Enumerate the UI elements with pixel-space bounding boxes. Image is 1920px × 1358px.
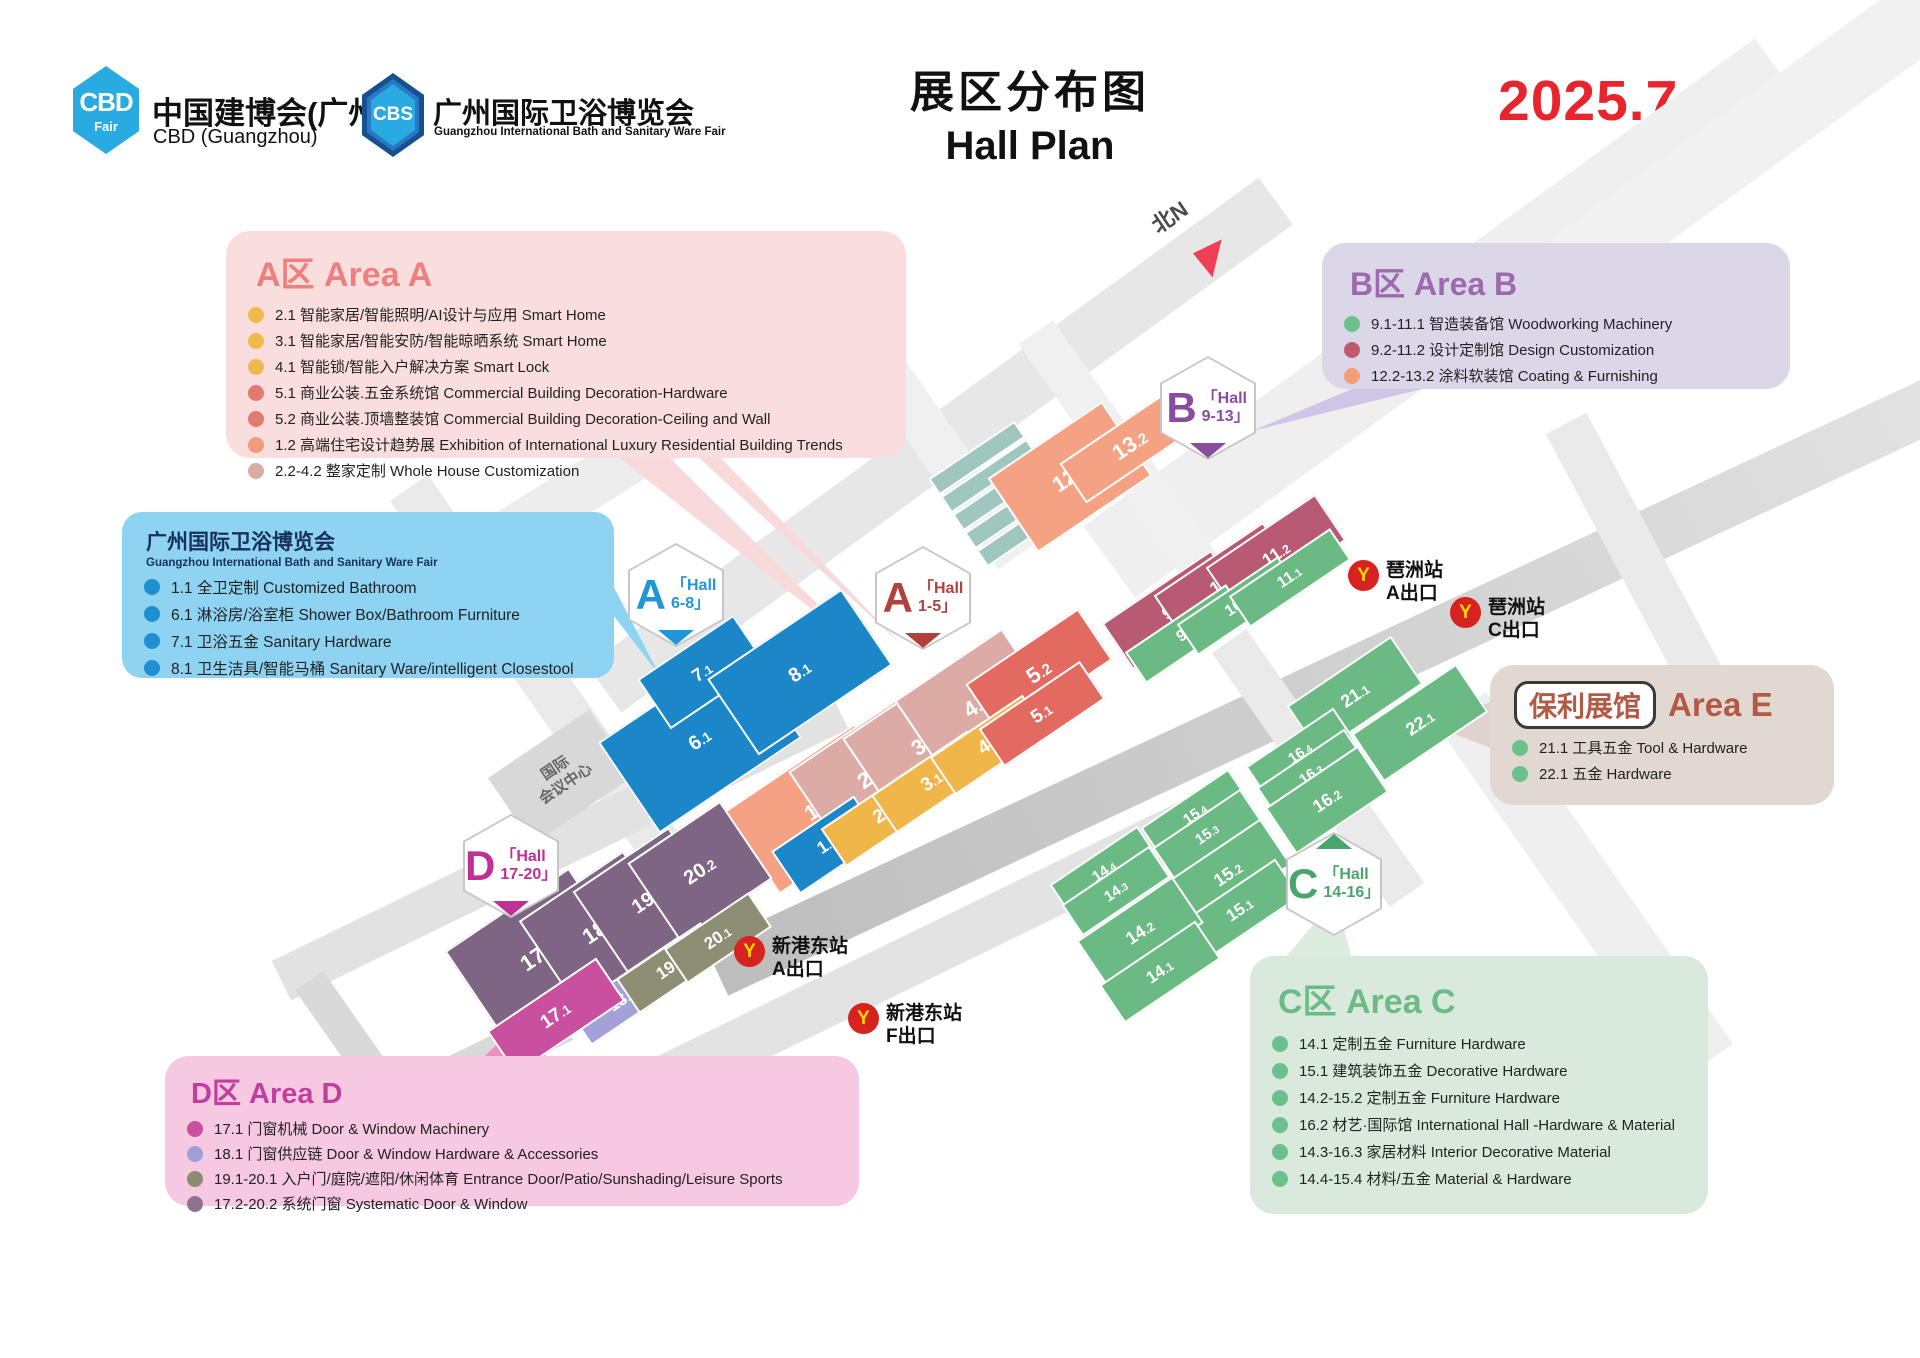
- station-exit: A出口: [1386, 583, 1443, 606]
- legend-item: 15.1 建筑装饰五金 Decorative Hardware: [1272, 1060, 1686, 1081]
- legend-dot-icon: [1344, 316, 1360, 332]
- area-c-title: C区 Area C: [1278, 974, 1686, 1023]
- hall-label: 13.2: [1107, 424, 1152, 466]
- area-b-title: B区 Area B: [1350, 259, 1768, 305]
- area-b-items: 9.1-11.1 智造装备馆 Woodworking Machinery9.2-…: [1344, 313, 1768, 386]
- legend-dot-icon: [1344, 368, 1360, 384]
- legend-item-label: 15.1 建筑装饰五金 Decorative Hardware: [1299, 1060, 1567, 1081]
- legend-dot-icon: [187, 1196, 203, 1212]
- hall-badge-c-14-16: C 「Hall14-16」: [1286, 832, 1382, 936]
- metro-logo-icon: Y: [1450, 597, 1481, 628]
- legend-item-label: 14.3-16.3 家居材料 Interior Decorative Mater…: [1299, 1141, 1611, 1162]
- area-d-items: 17.1 门窗机械 Door & Window Machinery18.1 门窗…: [187, 1118, 837, 1214]
- legend-area-e: 保利展馆 Area E 21.1 工具五金 Tool & Hardware22.…: [1490, 665, 1834, 805]
- hall-label: 20.2: [680, 852, 721, 890]
- legend-item: 4.1 智能锁/智能入户解决方案 Smart Lock: [248, 356, 884, 377]
- hall-badge-pointer: [658, 630, 694, 645]
- hall-badge-d-17-20: D 「Hall17-20」: [463, 814, 559, 918]
- legend-dot-icon: [1272, 1063, 1288, 1079]
- legend-dot-icon: [144, 579, 160, 595]
- hall-badge-letter: D: [465, 845, 495, 887]
- legend-item: 19.1-20.1 入户门/庭院/遮阳/休闲体育 Entrance Door/P…: [187, 1168, 837, 1189]
- hall-badge-letter: C: [1288, 863, 1318, 905]
- legend-item-label: 1.2 高端住宅设计趋势展 Exhibition of Internationa…: [275, 434, 843, 455]
- hall-label: 16.2: [1309, 783, 1346, 817]
- legend-bath-fair: 广州国际卫浴博览会 Guangzhou International Bath a…: [122, 512, 614, 678]
- legend-item-label: 14.2-15.2 定制五金 Furniture Hardware: [1299, 1087, 1560, 1108]
- metro-logo-icon: Y: [734, 936, 765, 967]
- hall-label: 8.1: [784, 656, 815, 688]
- legend-dot-icon: [248, 359, 264, 375]
- metro-station: Y琶洲站A出口: [1348, 560, 1443, 606]
- legend-dot-icon: [1512, 766, 1528, 782]
- legend-item-label: 18.1 门窗供应链 Door & Window Hardware & Acce…: [214, 1143, 598, 1164]
- legend-dot-icon: [187, 1171, 203, 1187]
- legend-area-d: D区 Area D 17.1 门窗机械 Door & Window Machin…: [165, 1056, 859, 1206]
- legend-item: 17.2-20.2 系统门窗 Systematic Door & Window: [187, 1193, 837, 1214]
- legend-item: 14.3-16.3 家居材料 Interior Decorative Mater…: [1272, 1141, 1686, 1162]
- area-c-items: 14.1 定制五金 Furniture Hardware15.1 建筑装饰五金 …: [1272, 1033, 1686, 1189]
- legend-item: 1.1 全卫定制 Customized Bathroom: [144, 576, 592, 598]
- legend-item: 18.1 门窗供应链 Door & Window Hardware & Acce…: [187, 1143, 837, 1164]
- legend-dot-icon: [248, 463, 264, 479]
- legend-item-label: 17.1 门窗机械 Door & Window Machinery: [214, 1118, 489, 1139]
- legend-item: 7.1 卫浴五金 Sanitary Hardware: [144, 630, 592, 652]
- hall-badge-a-6-8: A 「Hall6-8」: [628, 543, 724, 647]
- hall-label: 6.1: [684, 724, 715, 756]
- legend-dot-icon: [144, 660, 160, 676]
- legend-dot-icon: [248, 385, 264, 401]
- legend-dot-icon: [248, 333, 264, 349]
- legend-item-label: 6.1 淋浴房/浴室柜 Shower Box/Bathroom Furnitur…: [171, 603, 520, 625]
- legend-dot-icon: [1272, 1090, 1288, 1106]
- area-a-items: 2.1 智能家居/智能照明/AI设计与应用 Smart Home3.1 智能家居…: [248, 304, 884, 481]
- station-name: 琶洲站: [1488, 597, 1545, 620]
- legend-item-label: 2.2-4.2 整家定制 Whole House Customization: [275, 460, 579, 481]
- legend-item-label: 17.2-20.2 系统门窗 Systematic Door & Window: [214, 1193, 527, 1214]
- legend-item-label: 5.2 商业公装.顶墙整装馆 Commercial Building Decor…: [275, 408, 770, 429]
- legend-item-label: 16.2 材艺·国际馆 International Hall -Hardware…: [1299, 1114, 1675, 1135]
- station-name: 琶洲站: [1386, 560, 1443, 583]
- legend-item: 2.1 智能家居/智能照明/AI设计与应用 Smart Home: [248, 304, 884, 325]
- legend-area-c: C区 Area C 14.1 定制五金 Furniture Hardware15…: [1250, 956, 1708, 1214]
- area-e-badge: 保利展馆: [1514, 681, 1656, 729]
- legend-item-label: 22.1 五金 Hardware: [1539, 763, 1672, 784]
- legend-item: 1.2 高端住宅设计趋势展 Exhibition of Internationa…: [248, 434, 884, 455]
- hall-label: 17.1: [537, 998, 576, 1034]
- legend-dot-icon: [1272, 1036, 1288, 1052]
- metro-station: Y新港东站A出口: [734, 936, 848, 982]
- station-exit: C出口: [1488, 620, 1545, 643]
- legend-item-label: 4.1 智能锁/智能入户解决方案 Smart Lock: [275, 356, 549, 377]
- hall-label: 11.1: [1274, 563, 1306, 592]
- bath-fair-subtitle: Guangzhou International Bath and Sanitar…: [146, 557, 592, 569]
- hall-badge-pointer: [1316, 834, 1352, 849]
- legend-item-label: 5.1 商业公装.五金系统馆 Commercial Building Decor…: [275, 382, 728, 403]
- legend-item-label: 14.4-15.4 材料/五金 Material & Hardware: [1299, 1168, 1572, 1189]
- hall-badge-pointer: [493, 901, 529, 916]
- legend-dot-icon: [1344, 342, 1360, 358]
- area-e-items: 21.1 工具五金 Tool & Hardware22.1 五金 Hardwar…: [1512, 737, 1812, 784]
- area-b-callout-wedge: [1252, 389, 1422, 431]
- legend-item-label: 1.1 全卫定制 Customized Bathroom: [171, 576, 417, 598]
- legend-item-label: 19.1-20.1 入户门/庭院/遮阳/休闲体育 Entrance Door/P…: [214, 1168, 783, 1189]
- legend-item: 5.1 商业公装.五金系统馆 Commercial Building Decor…: [248, 382, 884, 403]
- hall-label: 21.1: [1337, 678, 1374, 712]
- legend-dot-icon: [187, 1146, 203, 1162]
- hall-badge-pointer: [1190, 443, 1226, 458]
- hall-label: 15.3: [1192, 820, 1222, 848]
- legend-dot-icon: [1272, 1117, 1288, 1133]
- legend-dot-icon: [144, 633, 160, 649]
- hall-badge-letter: B: [1166, 387, 1196, 429]
- legend-item: 16.2 材艺·国际馆 International Hall -Hardware…: [1272, 1114, 1686, 1135]
- legend-item: 14.4-15.4 材料/五金 Material & Hardware: [1272, 1168, 1686, 1189]
- legend-dot-icon: [187, 1121, 203, 1137]
- legend-area-b: B区 Area B 9.1-11.1 智造装备馆 Woodworking Mac…: [1322, 243, 1790, 389]
- legend-item: 9.1-11.1 智造装备馆 Woodworking Machinery: [1344, 313, 1768, 334]
- legend-item-label: 3.1 智能家居/智能安防/智能晾晒系统 Smart Home: [275, 330, 607, 351]
- station-name: 新港东站: [772, 936, 848, 959]
- legend-item: 8.1 卫生洁具/智能马桶 Sanitary Ware/intelligent …: [144, 657, 592, 679]
- legend-item: 2.2-4.2 整家定制 Whole House Customization: [248, 460, 884, 481]
- area-d-title: D区 Area D: [191, 1070, 837, 1112]
- legend-item: 9.2-11.2 设计定制馆 Design Customization: [1344, 339, 1768, 360]
- legend-item: 17.1 门窗机械 Door & Window Machinery: [187, 1118, 837, 1139]
- legend-item-label: 12.2-13.2 涂料软装馆 Coating & Furnishing: [1371, 365, 1658, 386]
- hall-label: 14.3: [1101, 877, 1131, 905]
- hall-badge-letter: A: [636, 574, 666, 616]
- legend-item-label: 2.1 智能家居/智能照明/AI设计与应用 Smart Home: [275, 304, 606, 325]
- legend-item: 3.1 智能家居/智能安防/智能晾晒系统 Smart Home: [248, 330, 884, 351]
- metro-station: Y新港东站F出口: [848, 1003, 962, 1049]
- legend-dot-icon: [248, 307, 264, 323]
- legend-dot-icon: [248, 437, 264, 453]
- hall-label: 20.1: [701, 922, 736, 955]
- bath-fair-items: 1.1 全卫定制 Customized Bathroom6.1 淋浴房/浴室柜 …: [144, 576, 592, 679]
- hall-label: 5.1: [1027, 699, 1057, 729]
- metro-station: Y琶洲站C出口: [1450, 597, 1545, 643]
- legend-item: 12.2-13.2 涂料软装馆 Coating & Furnishing: [1344, 365, 1768, 386]
- legend-item: 14.1 定制五金 Furniture Hardware: [1272, 1033, 1686, 1054]
- legend-item-label: 9.1-11.1 智造装备馆 Woodworking Machinery: [1371, 313, 1672, 334]
- legend-dot-icon: [1272, 1144, 1288, 1160]
- hall-badge-pointer: [905, 633, 941, 648]
- metro-logo-icon: Y: [848, 1003, 879, 1034]
- legend-item-label: 8.1 卫生洁具/智能马桶 Sanitary Ware/intelligent …: [171, 657, 574, 679]
- legend-item-label: 9.2-11.2 设计定制馆 Design Customization: [1371, 339, 1654, 360]
- legend-dot-icon: [248, 411, 264, 427]
- legend-item: 5.2 商业公装.顶墙整装馆 Commercial Building Decor…: [248, 408, 884, 429]
- hall-plan-canvas: CBD Fair 中国建博会(广州) CBD (Guangzhou) CBS 广…: [0, 0, 1920, 1358]
- legend-dot-icon: [1272, 1171, 1288, 1187]
- legend-item-label: 14.1 定制五金 Furniture Hardware: [1299, 1033, 1526, 1054]
- metro-logo-icon: Y: [1348, 560, 1379, 591]
- station-name: 新港东站: [886, 1003, 962, 1026]
- legend-item: 22.1 五金 Hardware: [1512, 763, 1812, 784]
- hall-label: 14.2: [1122, 915, 1159, 949]
- hall-badge-a-1-5: A 「Hall1-5」: [875, 546, 971, 650]
- station-exit: F出口: [886, 1026, 962, 1049]
- legend-item-label: 7.1 卫浴五金 Sanitary Hardware: [171, 630, 392, 652]
- bath-fair-title: 广州国际卫浴博览会: [146, 526, 592, 556]
- legend-dot-icon: [144, 606, 160, 622]
- legend-item: 21.1 工具五金 Tool & Hardware: [1512, 737, 1812, 758]
- hall-badge-b-9-13: B 「Hall9-13」: [1160, 356, 1256, 460]
- hall-label: 15.1: [1223, 894, 1258, 927]
- hall-label: 14.1: [1143, 956, 1178, 989]
- legend-item: 14.2-15.2 定制五金 Furniture Hardware: [1272, 1087, 1686, 1108]
- hall-badge-letter: A: [883, 577, 913, 619]
- hall-label: 22.1: [1402, 706, 1439, 740]
- area-a-title: A区 Area A: [256, 247, 884, 296]
- legend-area-a: A区 Area A 2.1 智能家居/智能照明/AI设计与应用 Smart Ho…: [226, 231, 906, 458]
- legend-dot-icon: [1512, 740, 1528, 756]
- legend-item: 6.1 淋浴房/浴室柜 Shower Box/Bathroom Furnitur…: [144, 603, 592, 625]
- area-e-title: Area E: [1668, 686, 1773, 724]
- station-exit: A出口: [772, 959, 848, 982]
- legend-item-label: 21.1 工具五金 Tool & Hardware: [1539, 737, 1747, 758]
